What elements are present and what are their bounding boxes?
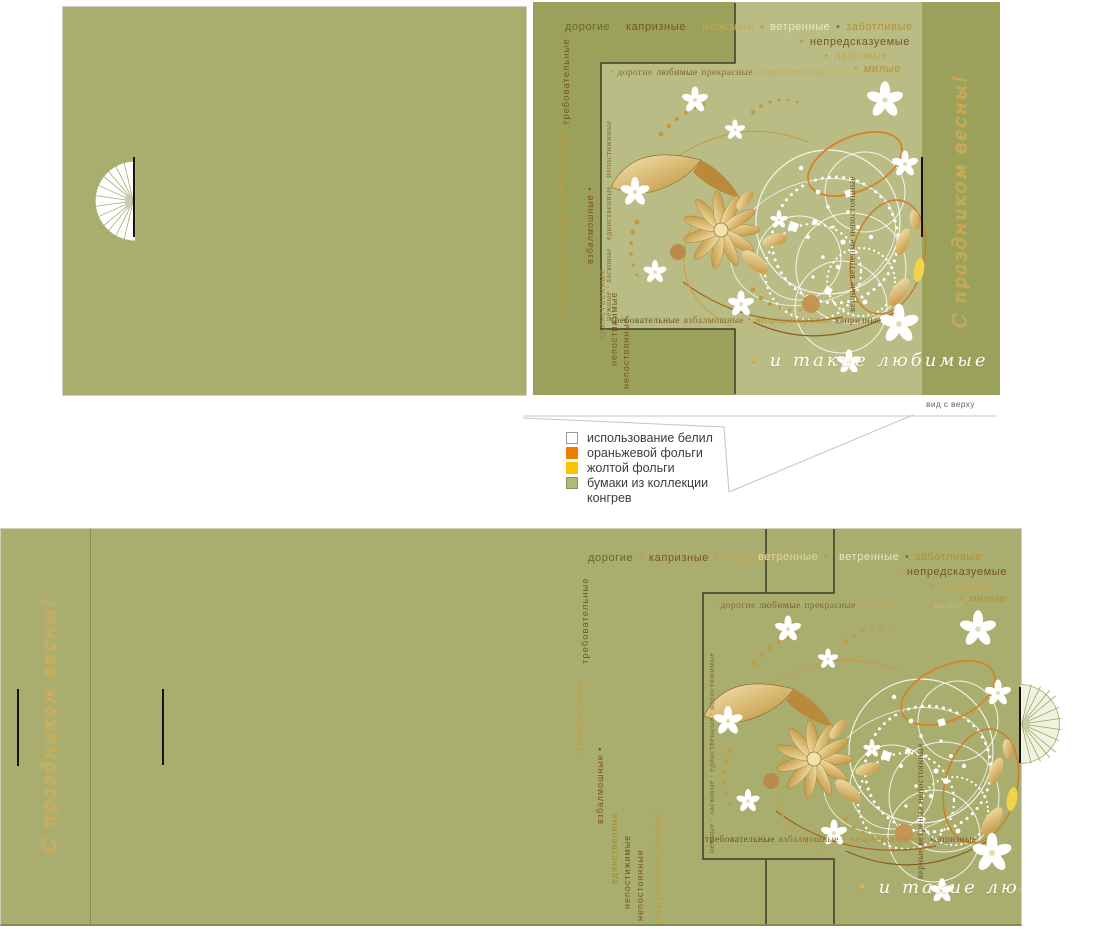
word: • xyxy=(713,601,717,611)
word: прекрасные xyxy=(804,601,856,611)
word: прекрасные xyxy=(701,68,753,78)
legend-row: использование белил xyxy=(566,431,725,446)
word: • xyxy=(929,580,933,592)
die-cut-slit xyxy=(1019,687,1021,763)
word: заботливые xyxy=(846,21,913,33)
word: капризные xyxy=(930,835,977,845)
word: • xyxy=(824,50,828,62)
word: • xyxy=(610,68,614,78)
inner-frame-left-words: нежные · ласковые · единственные · непос… xyxy=(604,86,613,321)
inner-frame-right-words: верные ветреные непостоянные xyxy=(915,704,925,879)
word: ветренные xyxy=(770,21,830,33)
spring-greeting-script: С праздником весны! xyxy=(948,88,972,328)
die-cut-slit xyxy=(133,157,135,237)
so-loved-script: •и такие любимые xyxy=(748,350,989,371)
epithet-row-2: • непредсказуемые xyxy=(897,566,1009,578)
inner-frame-right-words: верные ветреные непостоянные xyxy=(847,120,857,312)
word: нежные xyxy=(702,20,755,33)
so-loved-script: •и такие любимые xyxy=(857,877,1022,898)
word: ветренные xyxy=(758,551,818,563)
word: милые xyxy=(969,593,1006,605)
left-word-cluster-3: непостоянные xyxy=(621,294,631,389)
paper-swatch-icon xyxy=(566,477,578,489)
spring-greeting-script: С праздником весны! xyxy=(37,612,61,852)
left-word-cluster-2: непостижимые xyxy=(622,784,632,909)
left-word-beautiful: прекрасные xyxy=(575,649,586,754)
word: дорогие xyxy=(618,68,653,78)
inner-frame-left-words: нежные · ласковые · единственные · непос… xyxy=(707,613,716,853)
left-word-cluster-0: взбалмошные • xyxy=(595,709,605,824)
epithet-row-2: • непредсказуемые xyxy=(800,36,912,48)
poppy-flower-icon xyxy=(90,155,137,247)
word: • xyxy=(715,552,719,564)
word: ласковые xyxy=(834,50,888,62)
word: • xyxy=(692,21,696,33)
word: непредсказуемые xyxy=(907,566,1007,578)
epithet-row-1: дорогие • капризные • нежные • ветренные… xyxy=(565,20,915,33)
left-word-charming: очаровательные xyxy=(558,187,569,317)
left-word-cluster-0: взбалмошные • xyxy=(585,184,595,264)
word: взбалмошные xyxy=(779,835,839,845)
word: ветренные xyxy=(839,551,899,563)
unfolded-spread: С праздником весны! дорогие • капризные … xyxy=(0,528,1022,926)
left-word-cluster-1: единственные xyxy=(609,769,619,884)
word: требовательные xyxy=(610,316,680,326)
word: дорогие xyxy=(721,601,756,611)
word: • xyxy=(966,601,970,611)
die-cut-slit xyxy=(162,689,164,765)
word: милые xyxy=(831,68,859,78)
inner-frame-top-words: • дорогие любимые прекрасные очарователь… xyxy=(713,601,970,611)
die-cut-outline xyxy=(1,529,1022,926)
legend-label: бумаки из коллекции конгрев xyxy=(587,476,725,506)
word: • xyxy=(897,566,901,578)
word: • xyxy=(836,21,840,33)
word: взбалмошные xyxy=(684,316,744,326)
epithet-row-3: • ласковые xyxy=(929,580,995,592)
word: заботливые xyxy=(915,551,982,563)
word: требовательные xyxy=(705,835,775,845)
legend-label: ораньжевой фольги xyxy=(587,446,725,461)
word: милые xyxy=(864,63,901,75)
word: дорогие xyxy=(588,552,633,564)
word: очаровательные xyxy=(860,601,930,611)
word: • xyxy=(616,21,620,33)
word: очаровательные xyxy=(757,68,827,78)
word: • xyxy=(843,835,847,845)
orange-foil-swatch-icon xyxy=(566,447,578,459)
word: капризные xyxy=(626,21,686,33)
word: любимые xyxy=(759,601,800,611)
word: • xyxy=(905,551,909,563)
card-back-panel xyxy=(62,6,527,396)
poppy-flower-icon xyxy=(1018,678,1065,770)
gold-dot-icon: • xyxy=(748,350,762,371)
view-label: вид с верху xyxy=(926,399,975,409)
word: ласковые xyxy=(939,580,993,592)
legend-label: использование белил xyxy=(587,431,725,446)
gold-dot-icon: • xyxy=(857,877,871,898)
inner-frame-bottom-words: требовательные взбалмошные • непредсказу… xyxy=(705,835,978,845)
epithet-row-1b: ветренные • xyxy=(758,551,830,563)
word: капризные xyxy=(649,552,709,564)
legend-label: жолтой фольги xyxy=(587,461,725,476)
yellow-foil-swatch-icon xyxy=(566,462,578,474)
card-front-top-view: дорогие • капризные • нежные • ветренные… xyxy=(533,2,1000,395)
word: • xyxy=(748,316,752,326)
design-proof-sheet: дорогие • капризные • нежные • ветренные… xyxy=(0,0,1098,929)
legend-row: жолтой фольги xyxy=(566,461,725,476)
left-word-charming: очаровательные xyxy=(651,764,664,924)
die-cut-slit xyxy=(921,157,923,237)
word: • xyxy=(824,551,828,563)
technique-legend: использование белил ораньжевой фольги жо… xyxy=(566,431,725,506)
white-swatch-icon xyxy=(566,432,578,444)
legend-row: бумаки из коллекции конгрев xyxy=(566,476,725,506)
left-word-cluster-3: непостоянные xyxy=(635,801,645,921)
word: непредсказуемые xyxy=(810,36,910,48)
epithet-row-3: • ласковые xyxy=(824,50,890,62)
die-cut-slit xyxy=(17,689,19,766)
word: капризные xyxy=(835,316,882,326)
epithet-row-1c: ветренные • заботливые xyxy=(839,551,984,563)
inner-frame-bottom-words: требовательные взбалмошные • непредсказу… xyxy=(610,316,883,326)
left-word-demanding: требовательные xyxy=(561,30,572,125)
word: • xyxy=(863,68,867,78)
word: непредсказуемые xyxy=(755,316,831,326)
word: • xyxy=(760,21,764,33)
legend-row: ораньжевой фольги xyxy=(566,446,725,461)
word: • xyxy=(800,36,804,48)
inner-frame-top-words: • дорогие любимые прекрасные очарователь… xyxy=(610,68,867,78)
word: милые xyxy=(934,601,962,611)
word: • xyxy=(639,552,643,564)
word: любимые xyxy=(656,68,697,78)
